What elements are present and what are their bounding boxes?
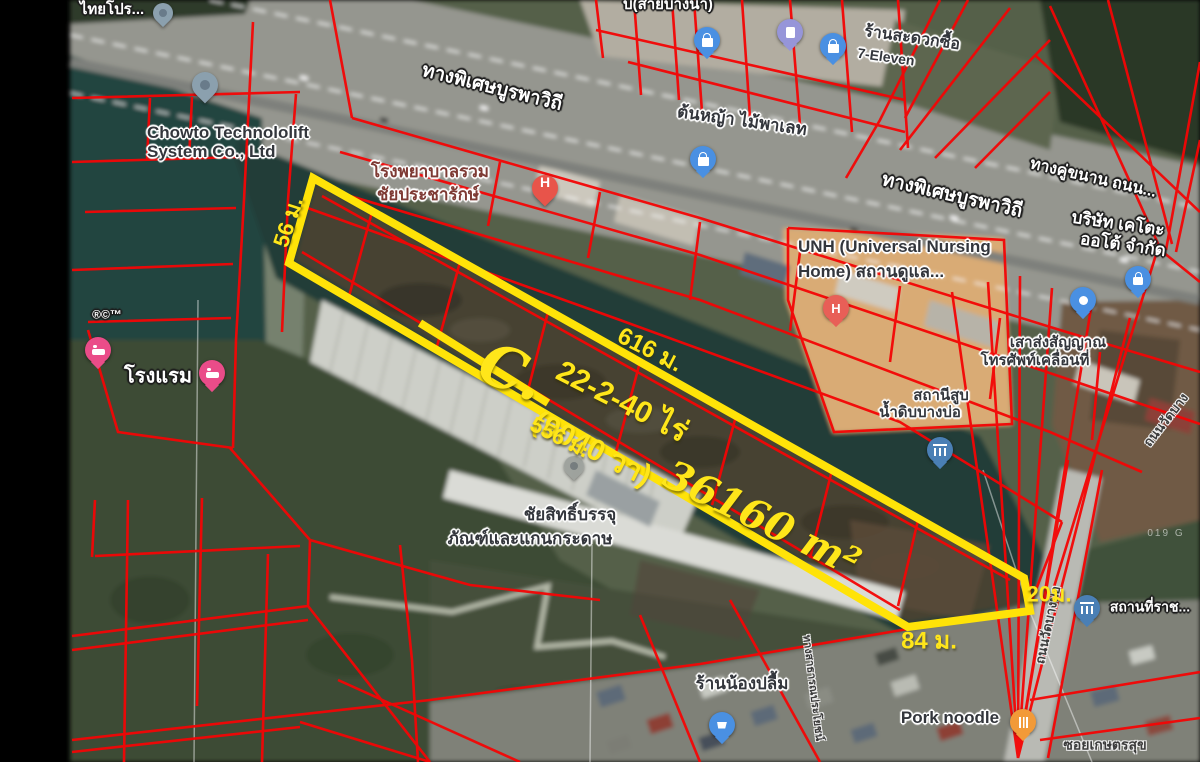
fork-knife-icon — [1019, 717, 1028, 728]
hotel-pin-2[interactable] — [199, 360, 225, 386]
shopping-pin-1[interactable] — [694, 27, 720, 53]
label-chowto-1[interactable]: Chowto Technololift — [147, 124, 309, 142]
pump-station-pin[interactable] — [927, 437, 953, 463]
government-building-icon — [934, 448, 946, 456]
shopping-cart-icon — [717, 722, 727, 729]
label-thai-pro[interactable]: ไทยโปร... — [80, 2, 144, 18]
unh-hospital-pin[interactable]: H — [823, 295, 849, 321]
label-chowto-2[interactable]: System Co., Ltd — [147, 143, 275, 161]
imagery-watermark: 019 G — [1147, 529, 1184, 540]
gas-station-pin[interactable] — [777, 19, 803, 45]
lock-icon — [1133, 277, 1143, 285]
dimension-south-tail: 84 ม. — [901, 628, 957, 653]
label-pump-station-1[interactable]: สถานีสูบ — [913, 388, 969, 404]
shopping-bag-icon — [698, 157, 709, 166]
lock-pin[interactable] — [1125, 266, 1151, 292]
label-hotel[interactable]: โรงแรม — [124, 367, 192, 388]
government-building-icon — [1081, 606, 1093, 614]
shopping-bag-icon — [828, 44, 839, 53]
map-screenshot: H H ไทยโปร... บ(สายบางนา) ทางพิเศษบูรพาว… — [0, 0, 1200, 762]
bed-icon — [92, 349, 105, 355]
gas-pump-icon — [786, 27, 795, 38]
label-unh-1[interactable]: UNH (Universal Nursing — [798, 238, 991, 256]
label-nongplum[interactable]: ร้านน้องปลื้ม — [696, 675, 789, 693]
restaurant-pin[interactable] — [1010, 709, 1036, 735]
shopping-pin-3[interactable] — [690, 146, 716, 172]
label-unh-2[interactable]: Home) สถานดูแล... — [798, 263, 944, 281]
label-gov-place[interactable]: สถานที่ราช... — [1110, 600, 1190, 615]
shop-cart-pin[interactable] — [709, 712, 735, 738]
label-trademark: ®©™ — [92, 309, 122, 322]
label-cell-tower-2[interactable]: โทรศัพท์เคลื่อนที่ — [981, 353, 1090, 369]
label-cell-tower-1[interactable]: เสาส่งสัญญาณ — [1010, 335, 1106, 351]
hospital-h-icon: H — [532, 174, 558, 190]
cell-tower-pin[interactable] — [1070, 287, 1096, 313]
label-pump-station-2[interactable]: น้ำดิบบางบ่อ — [879, 405, 961, 421]
hospital-h-icon: H — [831, 301, 840, 316]
label-chaiyasit-1[interactable]: ชัยสิทธิ์บรรจุ — [524, 506, 616, 524]
label-pork-noodle[interactable]: Pork noodle — [901, 709, 999, 727]
shopping-pin-2[interactable] — [820, 33, 846, 59]
shopping-bag-icon — [702, 38, 713, 47]
label-hospital-1[interactable]: โรงพยาบาลรวม — [371, 163, 489, 181]
hotel-pin-1[interactable] — [85, 337, 111, 363]
government-pin[interactable] — [1074, 595, 1100, 621]
dimension-east: 20ม. — [1026, 582, 1071, 605]
road-label-soi-kaset: ซอยเกษตรสุข — [1063, 738, 1146, 753]
bed-icon — [206, 372, 219, 378]
label-hospital-2[interactable]: ชัยประชารักษ์ — [377, 186, 479, 204]
dot-icon — [1079, 296, 1088, 305]
label-sai-bangna: บ(สายบางนา) — [623, 0, 713, 13]
label-chaiyasit-2[interactable]: ภัณฑ์และแกนกระดาษ — [448, 530, 613, 548]
